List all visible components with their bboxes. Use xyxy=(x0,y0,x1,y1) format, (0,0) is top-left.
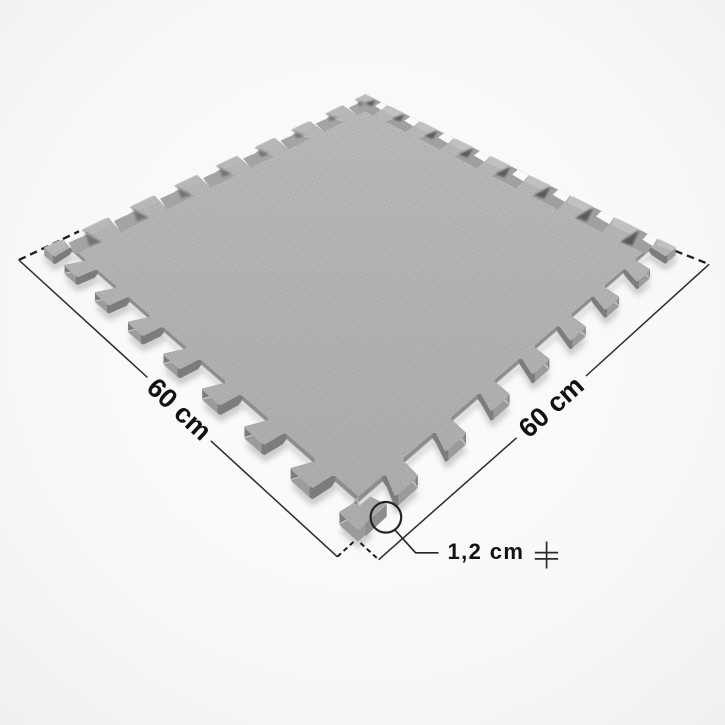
svg-text:1,2 cm: 1,2 cm xyxy=(448,539,525,564)
